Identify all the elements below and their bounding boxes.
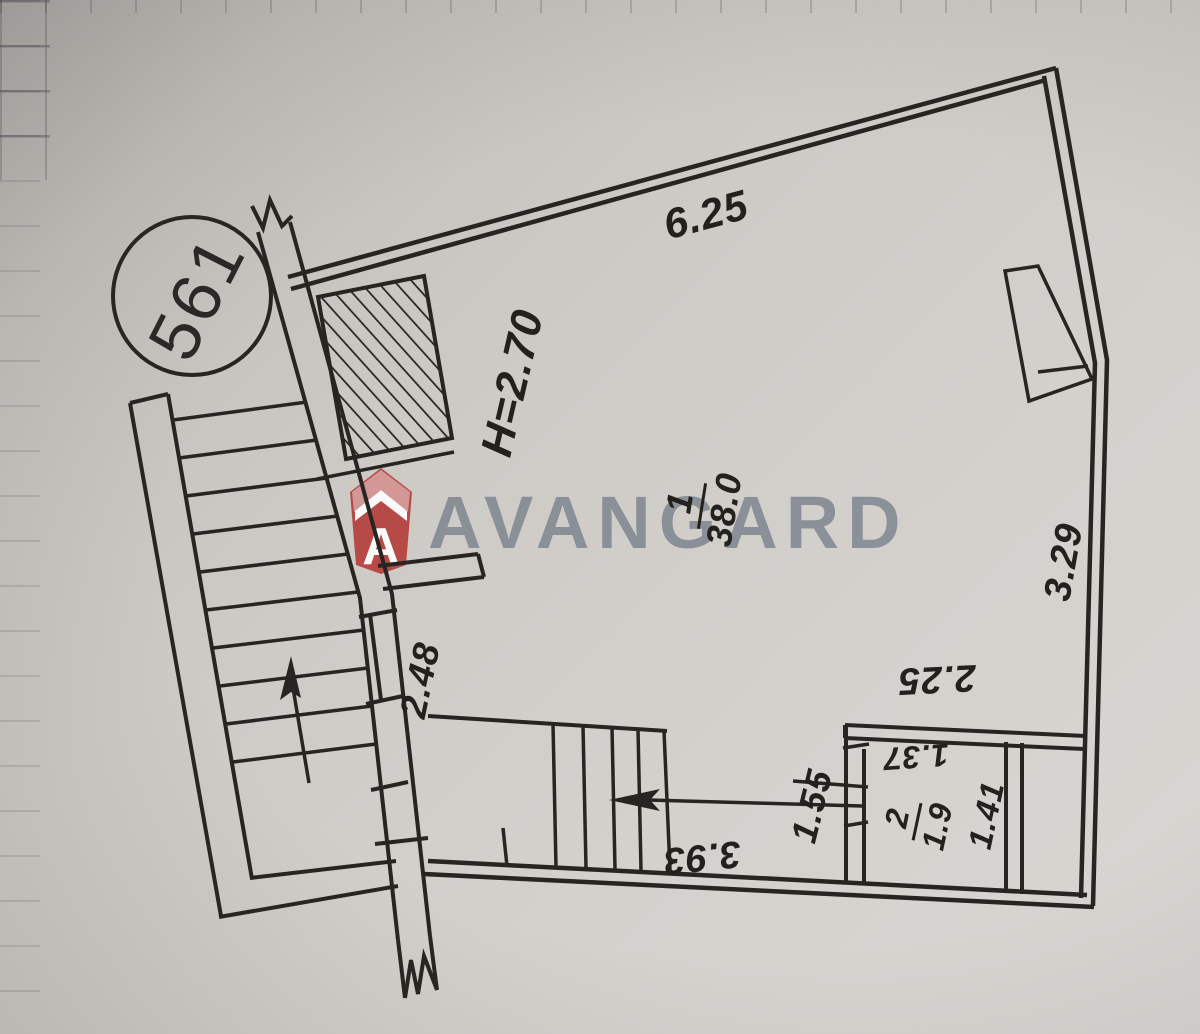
dim-room2-width: 1.37 — [882, 739, 950, 776]
room2-area: 1.9 — [916, 800, 957, 853]
hatched-shaft — [317, 276, 454, 479]
balcony-door — [1005, 266, 1092, 401]
room1-label: 1 38.0 — [656, 463, 748, 549]
floor-plan-photo: A AVANGARD — [0, 0, 1200, 1034]
wall-break-icon — [252, 200, 292, 228]
entry-partition — [378, 554, 484, 589]
room1-number: 1 — [660, 489, 699, 515]
room2-number: 2 — [879, 805, 914, 830]
dim-bottom-wall: 3.93 — [661, 834, 743, 880]
dim-room2-top: 2.25 — [897, 658, 977, 700]
